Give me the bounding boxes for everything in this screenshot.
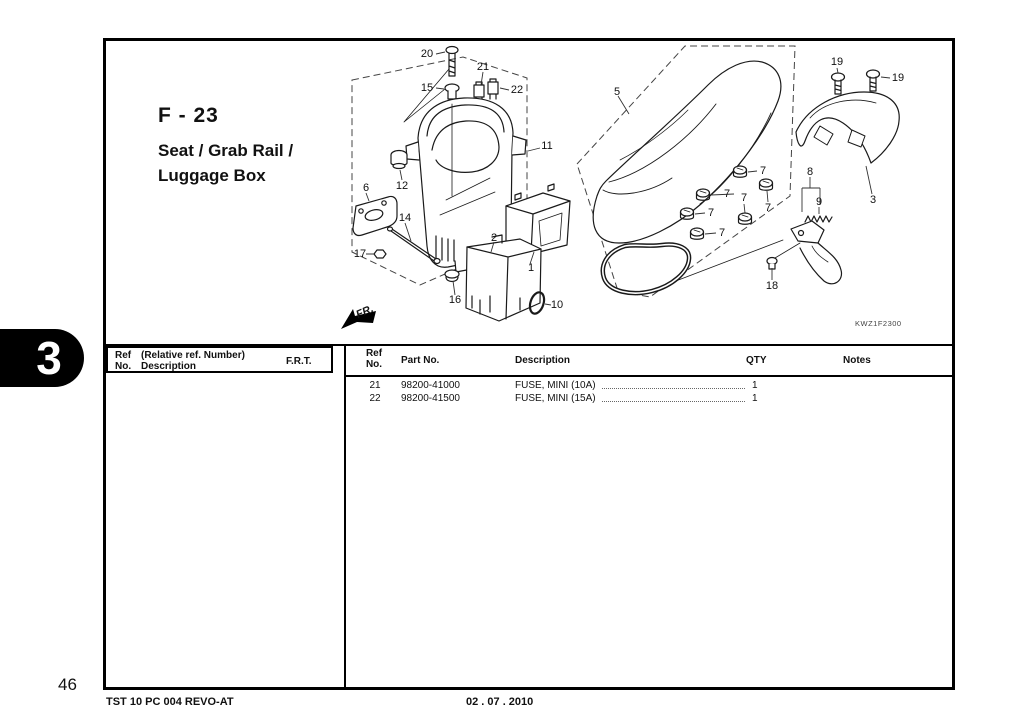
footer-date: 02 . 07 . 2010 (466, 696, 533, 708)
left-header-no: No. (115, 361, 131, 372)
cell-description: FUSE, MINI (15A) (515, 393, 749, 404)
parts-table-body: 2198200-41000FUSE, MINI (10A)12298200-41… (345, 376, 955, 690)
right-header-qty: QTY (746, 355, 767, 366)
grab-rail-drawing (796, 92, 899, 163)
rubber-mount-12-drawing (391, 151, 407, 169)
left-header-relative: (Relative ref. Number) (141, 350, 245, 361)
right-header-description: Description (515, 355, 570, 366)
diagram-code: KWZ1F2300 (855, 319, 902, 328)
cell-ref-no: 21 (361, 380, 389, 391)
table-row: 2198200-41000FUSE, MINI (10A)1 (345, 380, 955, 392)
fuse-22-drawing (488, 79, 498, 99)
cell-part-no: 98200-41000 (401, 380, 511, 391)
table-row: 2298200-41500FUSE, MINI (15A)1 (345, 393, 955, 405)
cell-qty: 1 (752, 393, 776, 404)
bolt-19b-drawing (867, 70, 880, 91)
left-header-ref: Ref (115, 350, 131, 361)
bolt-19a-drawing (832, 73, 845, 94)
cell-qty: 1 (752, 380, 776, 391)
cell-description: FUSE, MINI (10A) (515, 380, 749, 391)
catalog-page: 3 F - 23 Seat / Grab Rail / Luggage Box (0, 0, 1024, 725)
footer-catalog-code: TST 10 PC 004 REVO-AT (106, 696, 234, 708)
left-header-frt: F.R.T. (286, 356, 312, 367)
description-text: FUSE, MINI (10A) (515, 380, 596, 391)
nut-17-drawing (374, 250, 386, 258)
left-table-header: Ref No. (Relative ref. Number) Descripti… (106, 346, 333, 373)
grommet-16-drawing (445, 270, 459, 282)
bolt-15-drawing (445, 84, 459, 99)
right-header-notes: Notes (843, 355, 871, 366)
spring-9-drawing (805, 216, 832, 222)
right-header-part-no: Part No. (401, 355, 439, 366)
bolt-18-drawing (767, 258, 777, 270)
trim-wire-drawing (603, 245, 689, 293)
seat-latch-drawing (791, 221, 842, 284)
right-header-ref: Ref No. (361, 348, 387, 370)
left-header-description: Description (141, 361, 245, 372)
cell-part-no: 98200-41500 (401, 393, 511, 404)
leader-dots (602, 388, 745, 389)
description-text: FUSE, MINI (15A) (515, 393, 596, 404)
bolt-20-drawing (446, 47, 458, 77)
cell-ref-no: 22 (361, 393, 389, 404)
leader-dots (602, 401, 745, 402)
page-number: 46 (58, 675, 77, 695)
